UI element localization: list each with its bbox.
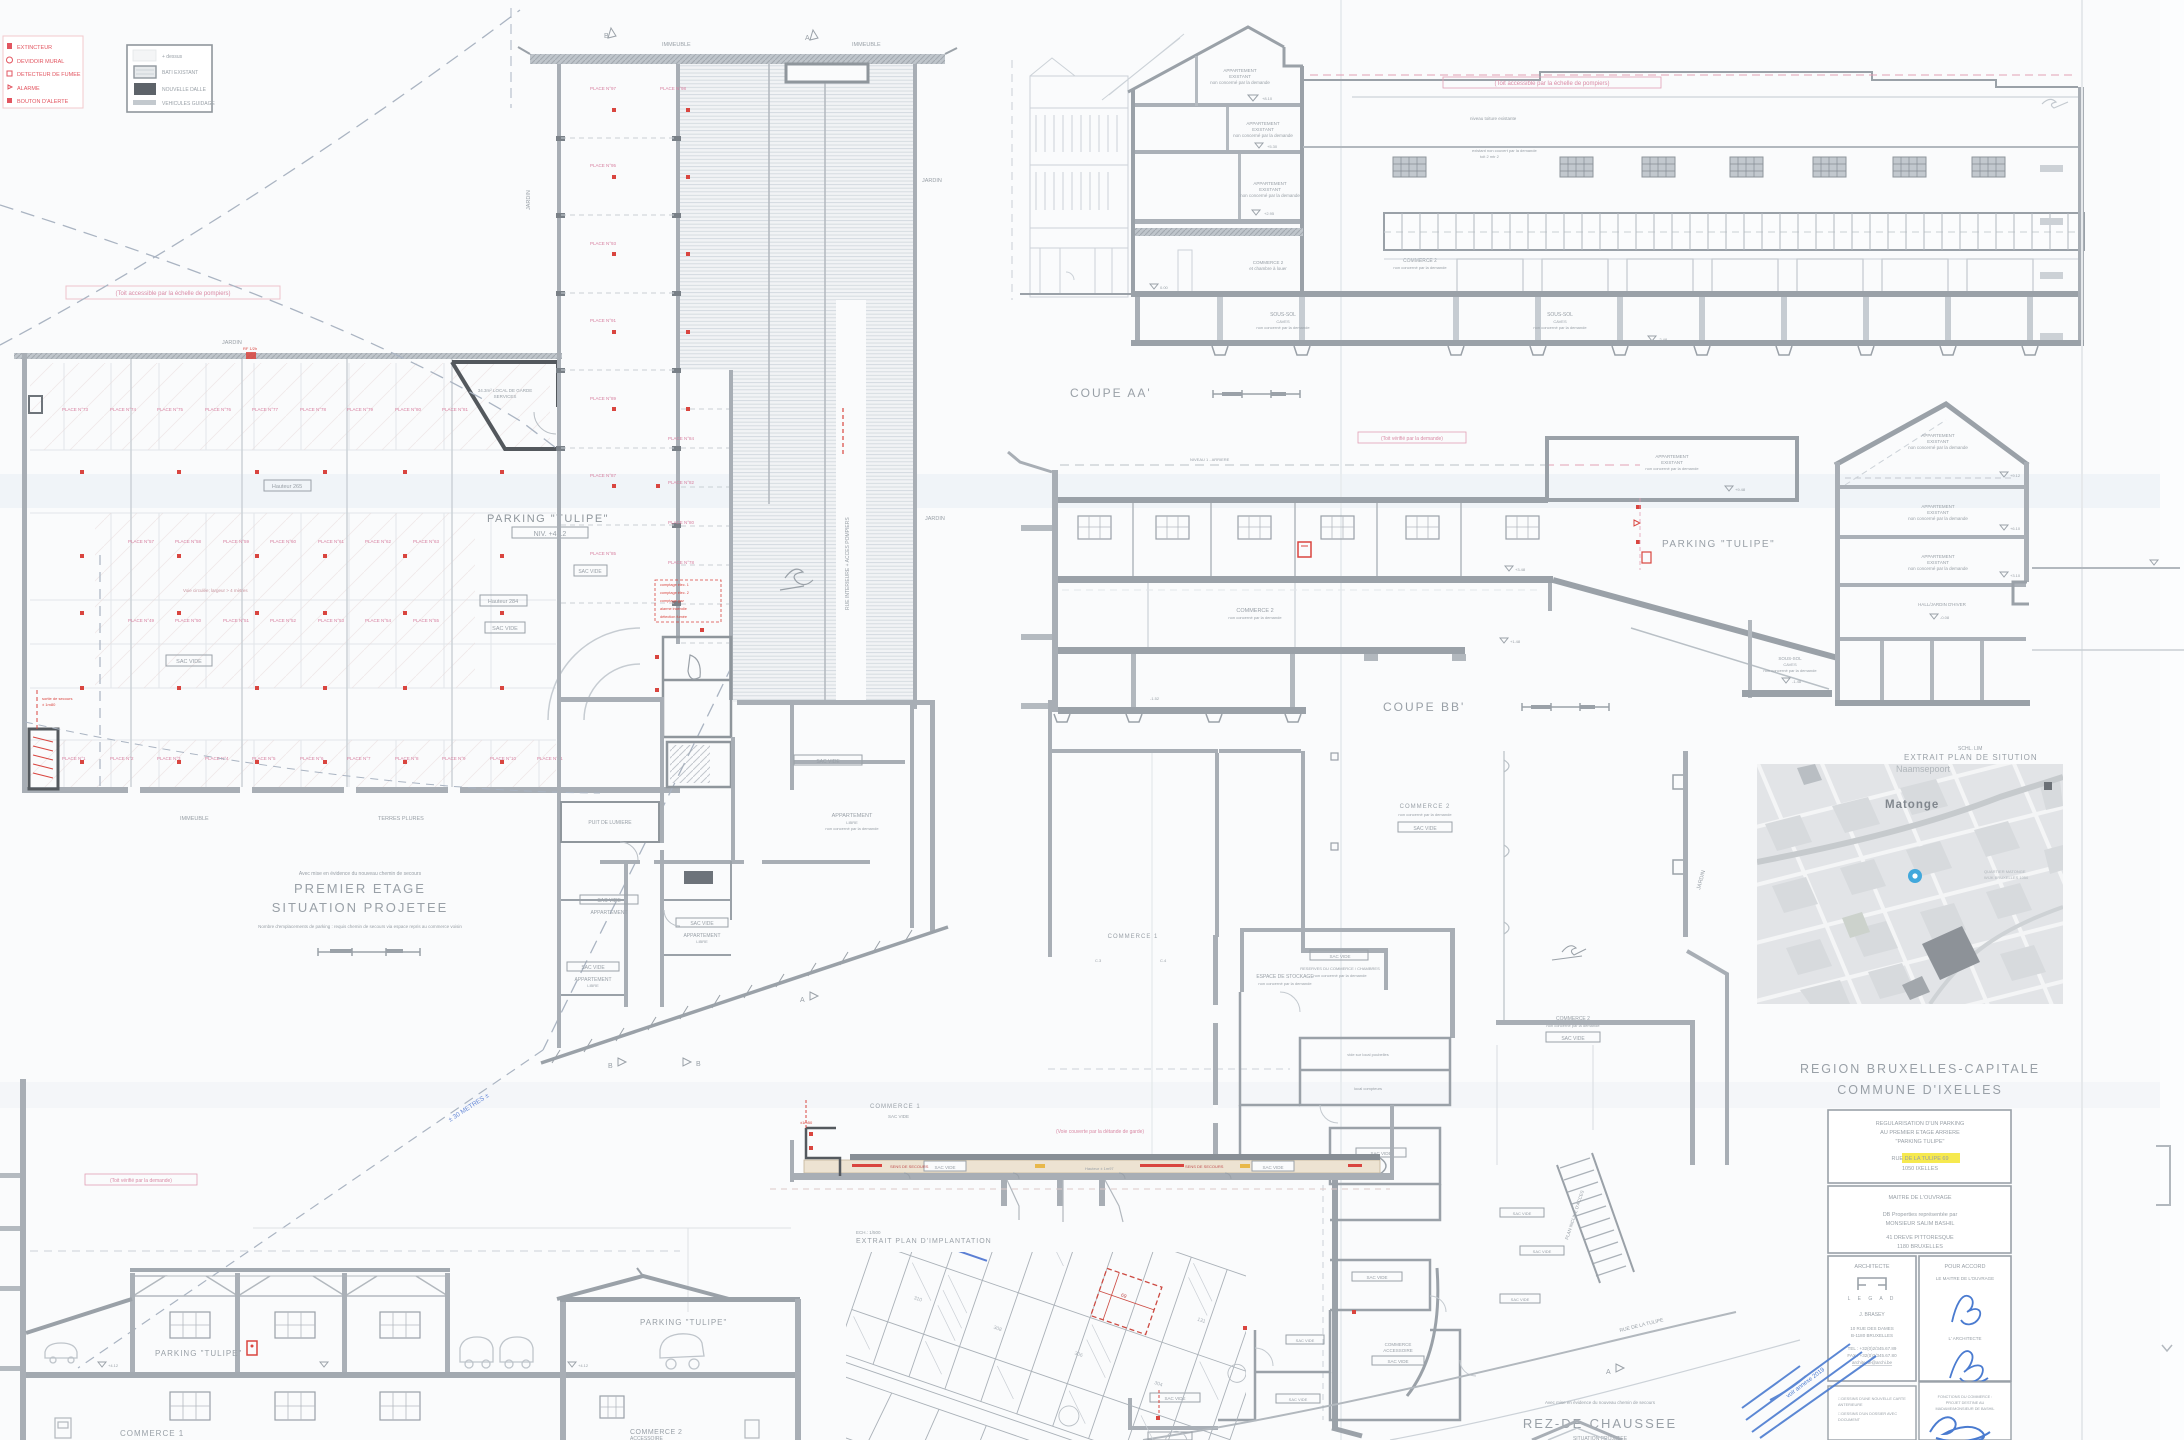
svg-text:(Voie couverte par la détande: (Voie couverte par la détande de garde) <box>1056 1129 1144 1135</box>
svg-text:IMMEUBLE: IMMEUBLE <box>852 42 881 48</box>
svg-text:"PARKING TULIPE": "PARKING TULIPE" <box>1896 1139 1945 1145</box>
svg-text:PLACE N°89: PLACE N°89 <box>590 396 617 401</box>
svg-text:SAC VIDE: SAC VIDE <box>888 1114 909 1119</box>
svg-text:Matonge: Matonge <box>1885 799 1939 811</box>
svg-text:EXTRAIT PLAN D'IMPLANTATION: EXTRAIT PLAN D'IMPLANTATION <box>856 1238 992 1245</box>
svg-text:ESPACE DE STOCKAGE: ESPACE DE STOCKAGE <box>1256 974 1314 980</box>
svg-text:-0.08: -0.08 <box>1940 615 1950 620</box>
svg-text:TERRES PLURES: TERRES PLURES <box>378 816 424 822</box>
svg-text:DB Properties représentée pa: DB Properties représentée par <box>1883 1212 1958 1218</box>
svg-text:C.4: C.4 <box>1160 958 1167 963</box>
svg-text:non concerné par la demande: non concerné par la demande <box>1210 80 1270 85</box>
svg-text:B: B <box>608 1063 613 1070</box>
svg-text:PLACE N°57: PLACE N°57 <box>128 539 155 544</box>
svg-text:+3.10: +3.10 <box>2010 573 2021 578</box>
svg-text:RESERVES DU COMMERCE / CHAMBRE: RESERVES DU COMMERCE / CHAMBRES <box>1300 966 1380 971</box>
svg-text:PLACE N°59: PLACE N°59 <box>223 539 250 544</box>
svg-text:IMMEUBLE: IMMEUBLE <box>180 816 209 822</box>
svg-text:A: A <box>800 997 805 1004</box>
svg-text:LIBRE: LIBRE <box>696 939 708 944</box>
svg-text:PARKING "TULIPE": PARKING "TULIPE" <box>640 1318 727 1327</box>
svg-text:PLACE N°80: PLACE N°80 <box>395 407 422 412</box>
svg-text:SAC VIDE: SAC VIDE <box>1513 1211 1532 1216</box>
svg-text:PLACE N°98: PLACE N°98 <box>660 86 687 91</box>
svg-text:± 1m80: ± 1m80 <box>42 702 56 707</box>
svg-text:+1.48: +1.48 <box>1510 639 1521 644</box>
svg-text:SENS DE SECOURS: SENS DE SECOURS <box>890 1164 929 1169</box>
svg-text:LIBRE: LIBRE <box>587 983 599 988</box>
svg-text:SOUS-SOL: SOUS-SOL <box>1547 312 1573 318</box>
svg-text:non concerné par la demande: non concerné par la demande <box>1645 466 1699 471</box>
svg-text:EXISTANT: EXISTANT <box>1927 560 1949 565</box>
svg-text:RUE DE LA TULIPE 69: RUE DE LA TULIPE 69 <box>1891 1156 1948 1162</box>
svg-text:PLACE N°3: PLACE N°3 <box>157 756 181 761</box>
svg-text:BATI EXISTANT: BATI EXISTANT <box>162 70 198 76</box>
svg-text:non concerné par la demande: non concerné par la demande <box>1763 668 1817 673</box>
svg-text:SAC VIDE: SAC VIDE <box>1296 1338 1315 1343</box>
svg-text:PLACE N°6: PLACE N°6 <box>300 756 324 761</box>
svg-text:non concerné par la demande: non concerné par la demande <box>1908 516 1968 521</box>
svg-text:SAC VIDE: SAC VIDE <box>578 569 602 575</box>
svg-text:L' ARCHITECTE: L' ARCHITECTE <box>1948 1336 1981 1341</box>
svg-text:+4.12: +4.12 <box>578 1363 589 1368</box>
svg-text:PLACE N°97: PLACE N°97 <box>590 86 617 91</box>
svg-text:HALL/JARDIN D'HIVER: HALL/JARDIN D'HIVER <box>1918 602 1967 607</box>
svg-text:PLACE N°82: PLACE N°82 <box>668 480 695 485</box>
svg-text:PLACE N°10: PLACE N°10 <box>490 756 517 761</box>
svg-text:APPARTEMENT: APPARTEMENT <box>1223 68 1257 73</box>
svg-text:PLACE N°63: PLACE N°63 <box>413 539 440 544</box>
svg-text:COMMERCE 1: COMMERCE 1 <box>120 1429 184 1438</box>
svg-text:MONSIEUR SALIM BASHIL: MONSIEUR SALIM BASHIL <box>1886 1221 1955 1227</box>
svg-text:PLACE N°84: PLACE N°84 <box>668 436 695 441</box>
svg-text:sortie de secours: sortie de secours <box>42 696 72 701</box>
svg-text:EXISTANT: EXISTANT <box>1259 187 1281 192</box>
svg-text:APPARTEMENT: APPARTEMENT <box>1921 433 1955 438</box>
svg-text:PLACE N°73: PLACE N°73 <box>62 407 89 412</box>
svg-text:PLACE N°76: PLACE N°76 <box>205 407 232 412</box>
svg-text:L E G A D: L E G A D <box>1848 1296 1897 1302</box>
svg-text:comptage gaz: comptage gaz <box>660 599 684 603</box>
svg-text:NOUVELLE DALLE: NOUVELLE DALLE <box>162 87 207 93</box>
svg-text:SOUS-SOL: SOUS-SOL <box>1270 312 1296 318</box>
svg-text:NIV. +4.12: NIV. +4.12 <box>534 531 567 538</box>
svg-text:+6.10: +6.10 <box>2010 526 2021 531</box>
svg-text:ALARME: ALARME <box>17 86 40 92</box>
svg-text:+5.30: +5.30 <box>1267 144 1278 149</box>
svg-text:PLACE N°51: PLACE N°51 <box>223 618 250 623</box>
svg-text:APPARTEMENT: APPARTEMENT <box>1253 181 1287 186</box>
svg-text:PLACE N°80: PLACE N°80 <box>668 520 695 525</box>
svg-text:PLACE N°93: PLACE N°93 <box>590 241 617 246</box>
svg-text:PLACE N°61: PLACE N°61 <box>318 539 345 544</box>
svg-text:SAC VIDE: SAC VIDE <box>581 965 605 971</box>
svg-text:B: B <box>696 1061 701 1068</box>
svg-text:existant non couvert par la de: existant non couvert par la demande <box>1472 148 1537 153</box>
svg-text:APPARTEMENT: APPARTEMENT <box>590 910 627 916</box>
svg-text:Avec mise en évidence du nouve: Avec mise en évidence du nouveau chemin … <box>1545 1400 1656 1405</box>
svg-text:Nombre d'emplacements de parki: Nombre d'emplacements de parking : requi… <box>258 924 462 929</box>
svg-text:REGULARISATION D'UN PARKING: REGULARISATION D'UN PARKING <box>1876 1121 1965 1127</box>
svg-text:non concerné par la demande: non concerné par la demande <box>1393 265 1447 270</box>
svg-text:non concerné par la demande: non concerné par la demande <box>1908 566 1968 571</box>
svg-text:EXISTANT: EXISTANT <box>1927 510 1949 515</box>
svg-text:ECH.: 1/500: ECH.: 1/500 <box>856 1230 881 1235</box>
svg-text:1050 IXELLES: 1050 IXELLES <box>1902 1166 1938 1172</box>
svg-text:C.3: C.3 <box>1095 958 1102 963</box>
svg-text:34.3m² LOCAL DE GARDE: 34.3m² LOCAL DE GARDE <box>478 388 533 393</box>
svg-text:POUR ACCORD: POUR ACCORD <box>1945 1264 1986 1270</box>
svg-text:+3.48: +3.48 <box>1515 567 1526 572</box>
svg-text:(Toit vérifié par la demande): (Toit vérifié par la demande) <box>1381 436 1443 442</box>
svg-text:CAVES: CAVES <box>1783 662 1797 667</box>
svg-text:PLACE N°50: PLACE N°50 <box>175 618 202 623</box>
svg-text:non concerné par la demande: non concerné par la demande <box>1258 981 1312 986</box>
svg-text:vide sur local poubelles: vide sur local poubelles <box>1347 1052 1389 1057</box>
svg-text:LIBRE: LIBRE <box>846 820 858 825</box>
svg-text:non concerné par la demande: non concerné par la demande <box>1233 133 1293 138</box>
svg-text:SAC VIDE: SAC VIDE <box>1366 1275 1387 1280</box>
svg-text:(Toit accessible par la échell: (Toit accessible par la échelle de pompi… <box>1494 81 1609 87</box>
svg-text:10 RUE DES DAMES: 10 RUE DES DAMES <box>1850 1326 1894 1331</box>
svg-text:CAVES: CAVES <box>1553 319 1567 324</box>
svg-text:SAC VIDE: SAC VIDE <box>690 921 714 927</box>
svg-text:CAVES: CAVES <box>1276 319 1290 324</box>
svg-text:EXTRAIT PLAN DE SITUTION: EXTRAIT PLAN DE SITUTION <box>1904 753 2038 762</box>
svg-text:SITUATION PROJETEE: SITUATION PROJETEE <box>272 900 449 915</box>
svg-text:architecte@archi.be: architecte@archi.be <box>1852 1360 1893 1365</box>
svg-text:NIVEAU 1 - ARRIERE: NIVEAU 1 - ARRIERE <box>1190 457 1230 462</box>
svg-text:PLACE N°52: PLACE N°52 <box>270 618 297 623</box>
svg-text:41 DREVE PITTORESQUE: 41 DREVE PITTORESQUE <box>1886 1235 1954 1241</box>
svg-text:PLACE N°1: PLACE N°1 <box>62 756 86 761</box>
svg-text:(Toit vérifié par la demande): (Toit vérifié par la demande) <box>110 1178 172 1184</box>
svg-text:RUE INTERIEURE + ACCES POMPIER: RUE INTERIEURE + ACCES POMPIERS <box>845 517 851 610</box>
svg-text:COUPE AA': COUPE AA' <box>1070 386 1152 400</box>
svg-text:non concerné par la demande: non concerné par la demande <box>1533 325 1587 330</box>
svg-text:APPARTEMENT: APPARTEMENT <box>832 813 873 819</box>
svg-text:PLACE N°85: PLACE N°85 <box>590 551 617 556</box>
svg-text:1180 BRUXELLES: 1180 BRUXELLES <box>1897 1244 1943 1250</box>
svg-text:-2.48: -2.48 <box>1658 337 1668 342</box>
svg-text:PLACE N°54: PLACE N°54 <box>365 618 392 623</box>
svg-text:détection fumée: détection fumée <box>660 615 687 619</box>
svg-text:et chambre à louer: et chambre à louer <box>1249 266 1287 271</box>
svg-text:JARDIN: JARDIN <box>222 340 242 346</box>
svg-text:PLACE N°53: PLACE N°53 <box>318 618 345 623</box>
svg-text:SAC VIDE: SAC VIDE <box>1511 1297 1530 1302</box>
svg-text:+9.12: +9.12 <box>2010 473 2021 478</box>
svg-text:REZ-DE-CHAUSSEE: REZ-DE-CHAUSSEE <box>1523 1416 1677 1431</box>
svg-text:WIJK BRUXELLES 1050: WIJK BRUXELLES 1050 <box>1984 875 2029 880</box>
svg-text:COMMERCE 2: COMMERCE 2 <box>1236 608 1273 614</box>
svg-text:+4.12: +4.12 <box>108 1363 119 1368</box>
svg-text:SAC VIDE: SAC VIDE <box>1289 1397 1308 1402</box>
svg-text:REGION BRUXELLES-CAPITALE: REGION BRUXELLES-CAPITALE <box>1800 1062 2040 1076</box>
svg-text:COMMERCE 1: COMMERCE 1 <box>870 1104 921 1110</box>
svg-text:SOUS-SOL: SOUS-SOL <box>1778 656 1802 661</box>
svg-text:PLACE N°77: PLACE N°77 <box>252 407 279 412</box>
svg-text:B-1180 BRUXELLES: B-1180 BRUXELLES <box>1851 1333 1893 1338</box>
svg-text:A: A <box>1606 1369 1611 1376</box>
svg-text:VEHICULES GUIDAGE: VEHICULES GUIDAGE <box>162 101 215 107</box>
svg-text:alarme incendie: alarme incendie <box>660 607 687 611</box>
svg-text:PLACE N°2: PLACE N°2 <box>110 756 134 761</box>
svg-text:JARDIN: JARDIN <box>922 178 942 184</box>
svg-text:-1.52: -1.52 <box>1150 696 1160 701</box>
svg-text:non concerné par la demande: non concerné par la demande <box>1313 973 1367 978</box>
svg-text:non concerné par la demande: non concerné par la demande <box>1256 325 1310 330</box>
svg-text:local compteurs: local compteurs <box>1354 1086 1382 1091</box>
svg-text:RF 1/2h: RF 1/2h <box>243 346 257 351</box>
svg-text:non concerné par la demande: non concerné par la demande <box>1398 812 1452 817</box>
svg-text:SAC VIDE: SAC VIDE <box>934 1165 955 1170</box>
svg-text:PLACE N°75: PLACE N°75 <box>157 407 184 412</box>
svg-text:□ DESSINS D'UN DOSSIER AVEC: □ DESSINS D'UN DOSSIER AVEC <box>1838 1412 1897 1416</box>
svg-text:PLACE N°74: PLACE N°74 <box>110 407 137 412</box>
svg-text:PLACE N°87: PLACE N°87 <box>590 473 617 478</box>
svg-text:ANTERIEURE: ANTERIEURE <box>1838 1403 1863 1407</box>
svg-text:JARDIN: JARDIN <box>526 190 532 210</box>
svg-text:PARKING "TULIPE": PARKING "TULIPE" <box>1662 539 1775 550</box>
svg-text:PLACE N°5: PLACE N°5 <box>252 756 276 761</box>
svg-text:APPARTEMENT: APPARTEMENT <box>1246 121 1280 126</box>
svg-text:DETECTEUR DE FUMEE: DETECTEUR DE FUMEE <box>17 72 81 78</box>
svg-text:SAC VIDE: SAC VIDE <box>492 626 518 632</box>
svg-text:COMMERCE: COMMERCE <box>1385 1342 1412 1347</box>
svg-text:niveau toiture existante: niveau toiture existante <box>1470 116 1517 121</box>
svg-text:COMMUNE D'IXELLES: COMMUNE D'IXELLES <box>1837 1083 2003 1097</box>
svg-text:SAC VIDE: SAC VIDE <box>1387 1359 1408 1364</box>
svg-text:PARKING "TULIPE": PARKING "TULIPE" <box>487 513 609 525</box>
svg-text:LE MAITRE DE L'OUVRAGE: LE MAITRE DE L'OUVRAGE <box>1936 1276 1994 1281</box>
svg-text:MADAME/MONSIEUR DE BASHIL: MADAME/MONSIEUR DE BASHIL <box>1935 1407 1994 1411</box>
svg-text:non concerné par la demande: non concerné par la demande <box>1240 193 1300 198</box>
svg-text:PREMIER ETAGE: PREMIER ETAGE <box>294 881 426 896</box>
svg-text:EXISTANT: EXISTANT <box>1252 127 1274 132</box>
svg-text:SAC VIDE: SAC VIDE <box>1533 1249 1552 1254</box>
svg-text:PLACE N°95: PLACE N°95 <box>590 163 617 168</box>
svg-text:SAC VIDE: SAC VIDE <box>816 759 840 765</box>
svg-text:ACCESSOIRE: ACCESSOIRE <box>630 1436 663 1440</box>
svg-text:Hauteur 265: Hauteur 265 <box>272 484 302 490</box>
svg-text:PLACE N°58: PLACE N°58 <box>175 539 202 544</box>
svg-text:BOUTON D'ALERTE: BOUTON D'ALERTE <box>17 99 69 105</box>
svg-text:+2.95: +2.95 <box>1264 211 1275 216</box>
svg-text:comptage élec. 1: comptage élec. 1 <box>660 583 689 587</box>
svg-text:PLACE N°7: PLACE N°7 <box>347 756 371 761</box>
svg-text:PLACE N°91: PLACE N°91 <box>590 318 617 323</box>
svg-text:JARDIN: JARDIN <box>925 516 945 522</box>
svg-text:FONCTIONS DU COMMERCE :: FONCTIONS DU COMMERCE : <box>1938 1395 1993 1399</box>
svg-text:PLACE N°78: PLACE N°78 <box>668 560 695 565</box>
svg-text:PLACE N°62: PLACE N°62 <box>365 539 392 544</box>
svg-text:PLACE N°9: PLACE N°9 <box>442 756 466 761</box>
svg-text:DOCUMENT: DOCUMENT <box>1838 1418 1861 1422</box>
svg-text:PARKING "TULIPE": PARKING "TULIPE" <box>155 1349 242 1358</box>
svg-text:PLACE N°8: PLACE N°8 <box>395 756 419 761</box>
svg-text:J. BRASEY: J. BRASEY <box>1859 1312 1885 1318</box>
svg-text:COMMERCE 2: COMMERCE 2 <box>1400 804 1451 810</box>
svg-text:non concerné par la demande: non concerné par la demande <box>1908 445 1968 450</box>
svg-text:A: A <box>805 35 810 42</box>
svg-text:EXISTANT: EXISTANT <box>1661 460 1683 465</box>
svg-text:TEL : +32(0)2/345.67.89: TEL : +32(0)2/345.67.89 <box>1848 1346 1897 1351</box>
svg-text:EXTINCTEUR: EXTINCTEUR <box>17 45 52 51</box>
svg-text:+9.48: +9.48 <box>1735 487 1746 492</box>
svg-text:(Toit accessible par la échell: (Toit accessible par la échelle de pompi… <box>115 291 230 297</box>
svg-text:toit 2 mtr 2: toit 2 mtr 2 <box>1480 154 1500 159</box>
svg-text:PLACE N°55: PLACE N°55 <box>413 618 440 623</box>
svg-text:+ dessus: + dessus <box>162 54 183 60</box>
svg-text:EXISTANT: EXISTANT <box>1927 439 1949 444</box>
svg-text:COUPE BB': COUPE BB' <box>1383 700 1465 714</box>
svg-text:SAC VIDE: SAC VIDE <box>176 659 202 665</box>
svg-text:PROJET DESTINE AU: PROJET DESTINE AU <box>1946 1401 1985 1405</box>
svg-text:APPARTEMENT: APPARTEMENT <box>1921 504 1955 509</box>
svg-text:SAC VIDE: SAC VIDE <box>1329 954 1350 959</box>
svg-text:ARCHITECTE: ARCHITECTE <box>1854 1264 1889 1270</box>
svg-text:Naamsepoort: Naamsepoort <box>1896 764 1951 774</box>
svg-text:AU PREMIER ETAGE ARRIERE: AU PREMIER ETAGE ARRIERE <box>1880 1130 1960 1136</box>
svg-text:PLACE N°78: PLACE N°78 <box>300 407 327 412</box>
svg-text:MAITRE DE L'OUVRAGE: MAITRE DE L'OUVRAGE <box>1888 1195 1951 1201</box>
svg-text:Hauteur ± 1m97: Hauteur ± 1m97 <box>1085 1166 1114 1171</box>
svg-text:PLACE N°79: PLACE N°79 <box>347 407 374 412</box>
svg-text:SAC VIDE: SAC VIDE <box>1262 1165 1283 1170</box>
svg-text:PUIT DE LUMIERE: PUIT DE LUMIERE <box>588 820 632 826</box>
svg-text:comptage élec. 2: comptage élec. 2 <box>660 591 689 595</box>
svg-text:SAC VIDE: SAC VIDE <box>1561 1036 1585 1042</box>
svg-text:APPARTEMENT: APPARTEMENT <box>1655 454 1689 459</box>
svg-text:QUARTIER MATONGE: QUARTIER MATONGE <box>1984 869 2026 874</box>
svg-text:COMMERCE 2: COMMERCE 2 <box>1253 260 1284 265</box>
svg-text:non concerné par la demande: non concerné par la demande <box>1228 615 1282 620</box>
svg-text:ACCESSOIRE: ACCESSOIRE <box>1383 1348 1413 1353</box>
svg-text:PLACE N°81: PLACE N°81 <box>442 407 469 412</box>
svg-text:SERVICES: SERVICES <box>494 394 517 399</box>
svg-text:-1.48: -1.48 <box>1792 679 1802 684</box>
svg-text:SENS DE SECOURS: SENS DE SECOURS <box>1185 1164 1224 1169</box>
svg-text:PLACE N°49: PLACE N°49 <box>128 618 155 623</box>
svg-text:COMMERCE 2: COMMERCE 2 <box>630 1429 682 1436</box>
svg-text:COMMERCE 1: COMMERCE 1 <box>1108 934 1159 940</box>
svg-text:SCHL. LIM: SCHL. LIM <box>1958 746 1982 752</box>
svg-text:+8.10: +8.10 <box>1262 96 1273 101</box>
svg-text:PLACE N°60: PLACE N°60 <box>270 539 297 544</box>
svg-text:EXISTANT: EXISTANT <box>1229 74 1251 79</box>
svg-text:non concerné par la demande: non concerné par la demande <box>825 826 879 831</box>
svg-text:□ DESSINS D'UNE NOUVELLE CARTE: □ DESSINS D'UNE NOUVELLE CARTE <box>1838 1397 1906 1401</box>
svg-text:DEVIDOIR MURAL: DEVIDOIR MURAL <box>17 59 64 65</box>
svg-text:Hauteur 284: Hauteur 284 <box>488 599 518 605</box>
svg-text:APPARTEMENT: APPARTEMENT <box>1921 554 1955 559</box>
svg-text:Voie circulée; largeur > 4 mèt: Voie circulée; largeur > 4 mètres <box>183 588 248 593</box>
svg-text:IMMEUBLE: IMMEUBLE <box>662 42 691 48</box>
svg-text:SAC VIDE: SAC VIDE <box>1413 826 1437 832</box>
svg-text:0.00: 0.00 <box>1160 285 1169 290</box>
svg-text:Avec mise en évidence du nouve: Avec mise en évidence du nouveau chemin … <box>299 871 422 877</box>
